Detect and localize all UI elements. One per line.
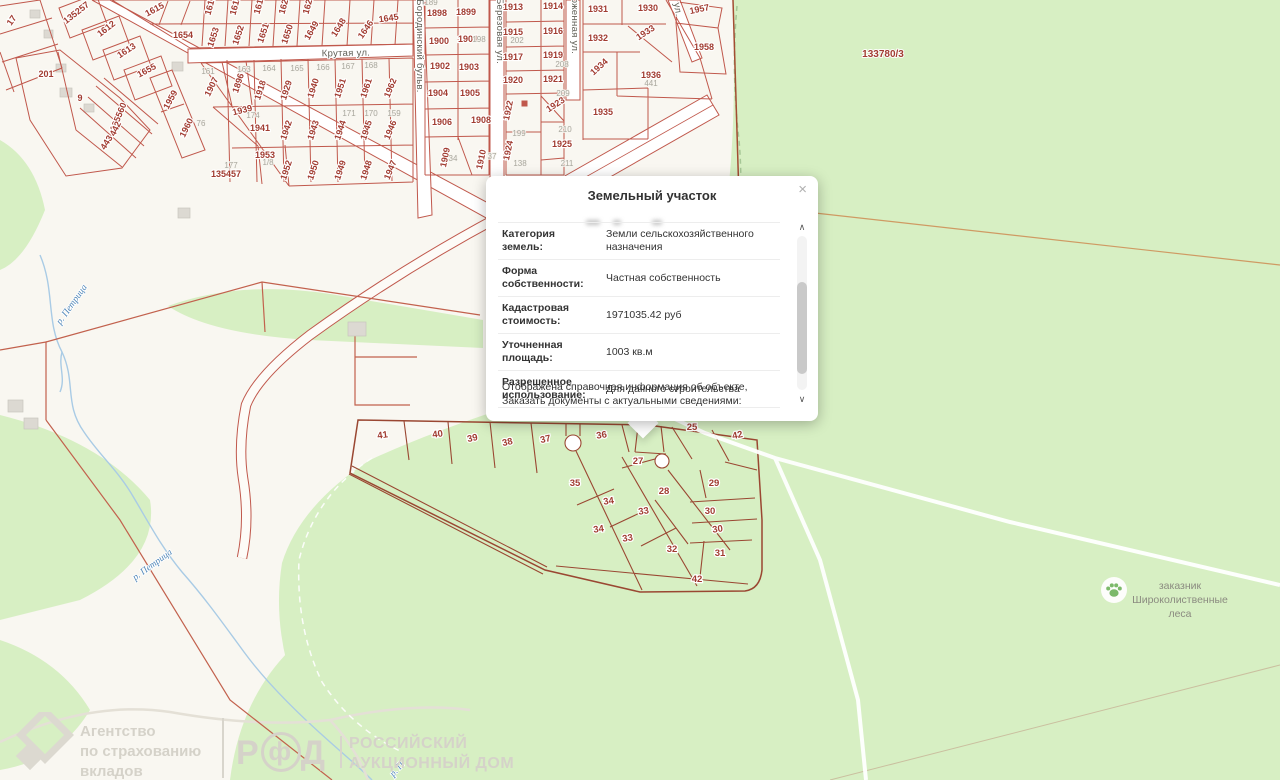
- parcel-label: 42: [692, 574, 703, 585]
- info-row-value: 1971035.42 руб: [598, 302, 776, 328]
- parcel-label-gray: 1/8: [262, 158, 274, 167]
- info-row-label: Уточненная площадь:: [502, 339, 598, 365]
- footer-line2: Заказать документы с актуальными сведени…: [502, 394, 772, 408]
- scroll-thumb[interactable]: [797, 282, 807, 374]
- parcel-label-gray: 198: [472, 35, 486, 44]
- rad-line2: АУКЦИОННЫЙ ДОМ: [349, 754, 514, 774]
- street-label: Бородинский бульв.: [414, 0, 425, 93]
- street-label: Березовая ул.: [494, 0, 505, 64]
- parcel-label: 1920: [503, 75, 523, 85]
- parcel-label: 1930: [638, 3, 658, 13]
- scroll-up-icon[interactable]: ∧: [794, 220, 810, 234]
- rad-letter-f: ф: [261, 732, 301, 772]
- parcel-label: 30: [705, 506, 716, 517]
- info-row-label: Кадастровая стоимость:: [502, 302, 598, 328]
- parcel-label: 31: [715, 548, 726, 559]
- reserve-label-line3: леса: [1100, 607, 1260, 621]
- parcel-label: 32: [667, 544, 678, 555]
- parcel-label: 1903: [459, 62, 479, 72]
- parcel-label-gray: 189: [424, 0, 438, 7]
- parcel-label: 25: [687, 422, 698, 433]
- parcel-label: 1898: [427, 8, 447, 18]
- parcel-label: 1917: [503, 52, 523, 62]
- parcel-label: 33: [622, 532, 634, 544]
- parcel-label-gray: 167: [341, 62, 355, 71]
- quarter-label: 133780/3: [862, 49, 904, 60]
- info-row-value: 1003 кв.м: [598, 339, 776, 365]
- parcel-label: 1958: [694, 42, 714, 52]
- asv-line2: по страхованию: [80, 742, 201, 762]
- scroll-down-icon[interactable]: ∨: [794, 392, 810, 406]
- parcel-label: 1919: [543, 50, 563, 60]
- nature-reserve-badge: заказник Широколиственные леса: [1100, 576, 1260, 621]
- parcel-label-gray: 165: [290, 64, 304, 73]
- parcel-label-gray: 441: [644, 79, 658, 88]
- parcel-label: 42: [731, 429, 744, 442]
- popup-scrollbar[interactable]: ∧ ∨: [794, 220, 810, 406]
- parcel-info-popup: Земельный участок × Категория земель:Зем…: [486, 176, 818, 421]
- parcel-label: 1904: [428, 88, 448, 98]
- asv-watermark: Агентство по страхованию вкладов: [80, 722, 201, 780]
- parcel-label: 1935: [593, 107, 613, 117]
- parcel-label: 1906: [432, 117, 452, 127]
- parcel-label: 37: [539, 433, 552, 446]
- parcel-label: 40: [432, 428, 444, 440]
- street-label: оженная ул.: [569, 0, 580, 54]
- parcel-label: 1914: [543, 1, 563, 11]
- parcel-label-gray: 161: [201, 67, 215, 76]
- popup-title: Земельный участок: [486, 188, 818, 203]
- parcel-label-gray: 208: [555, 60, 569, 69]
- parcel-label: 33: [638, 505, 650, 517]
- close-icon[interactable]: ×: [798, 183, 807, 197]
- parcel-label-gray: 76: [197, 119, 206, 128]
- parcel-label: 36: [596, 429, 608, 441]
- info-row: Категория земель:Земли сельскохозяйствен…: [498, 222, 780, 260]
- info-row: Форма собственности:Частная собственност…: [498, 260, 780, 297]
- parcel-label: 27: [633, 456, 644, 467]
- parcel-label-gray: 164: [262, 64, 276, 73]
- parcel-label: 1908: [471, 115, 491, 125]
- parcel-label: 1941: [250, 123, 270, 133]
- street-label: ул.: [671, 2, 684, 17]
- asv-line1: Агентство: [80, 722, 201, 742]
- parcel-label: 9: [77, 93, 82, 103]
- parcel-label: 29: [709, 478, 720, 489]
- watermark-divider-2: [340, 736, 342, 768]
- parcel-label-gray: 34: [449, 154, 458, 163]
- parcel-label: 1902: [430, 61, 450, 71]
- parcel-label: 1931: [588, 4, 608, 14]
- parcel-label: 1905: [460, 88, 480, 98]
- parcel-label-gray: 177: [224, 161, 238, 170]
- redacted-cadastral-number: [586, 212, 716, 220]
- parcel-label: 1900: [429, 36, 449, 46]
- parcel-label-gray: 138: [513, 159, 527, 168]
- footer-line1: Отображена справочная информация об объе…: [502, 380, 772, 394]
- parcel-label-gray: 171: [342, 109, 356, 118]
- rad-logo: РфД: [236, 732, 327, 773]
- rad-letter-p: Р: [236, 734, 261, 772]
- parcel-label-gray: 174: [246, 111, 260, 120]
- rad-letter-d: Д: [301, 734, 327, 772]
- parcel-label: 1899: [456, 7, 476, 17]
- parcel-label: 1654: [173, 30, 193, 40]
- info-row-label: Форма собственности:: [502, 265, 598, 291]
- parcel-label: 201: [38, 69, 53, 79]
- parcel-label-gray: 210: [558, 125, 572, 134]
- parcel-label: 1921: [543, 74, 563, 84]
- rad-line1: РОССИЙСКИЙ: [349, 734, 514, 754]
- info-row: Кадастровая стоимость:1971035.42 руб: [498, 297, 780, 334]
- parcel-label: 39: [466, 432, 479, 445]
- map-application: 1713525716121613165520191355604424431959…: [0, 0, 1280, 780]
- parcel-label-gray: 163: [237, 65, 251, 74]
- parcel-label: 1932: [588, 33, 608, 43]
- parcel-label: 135457: [211, 169, 241, 179]
- parcel-label: 35: [570, 478, 581, 489]
- parcel-label-gray: 168: [364, 61, 378, 70]
- parcel-label-gray: 166: [316, 63, 330, 72]
- parcel-label-gray: 199: [512, 129, 526, 138]
- parcel-label: 1916: [543, 26, 563, 36]
- parcel-label-gray: 159: [387, 109, 401, 118]
- rad-watermark: РОССИЙСКИЙ АУКЦИОННЫЙ ДОМ: [349, 734, 514, 774]
- info-row-value: Земли сельскохозяйственного назначения: [598, 228, 776, 254]
- parcel-label-gray: 202: [510, 36, 524, 45]
- info-row-label: Категория земель:: [502, 228, 598, 254]
- paw-icon: [1100, 576, 1128, 604]
- parcel-label: 1913: [503, 2, 523, 12]
- asv-line3: вкладов: [80, 762, 201, 780]
- info-row-value: Частная собственность: [598, 265, 776, 291]
- info-row: Уточненная площадь:1003 кв.м: [498, 334, 780, 371]
- parcel-label: 28: [659, 486, 670, 497]
- parcel-label: 38: [501, 436, 514, 449]
- parcel-label-gray: 209: [556, 89, 570, 98]
- parcel-label-gray: 211: [561, 159, 574, 168]
- parcel-label-gray: 37: [488, 152, 497, 161]
- parcel-label: 1925: [552, 139, 572, 149]
- parcel-label-gray: 170: [364, 109, 378, 118]
- parcel-label: 30: [712, 523, 724, 535]
- watermark-divider-1: [222, 718, 224, 778]
- street-label: Крутая ул.: [322, 48, 371, 60]
- popup-footer: Отображена справочная информация об объе…: [502, 380, 772, 408]
- asv-logo: [10, 712, 76, 778]
